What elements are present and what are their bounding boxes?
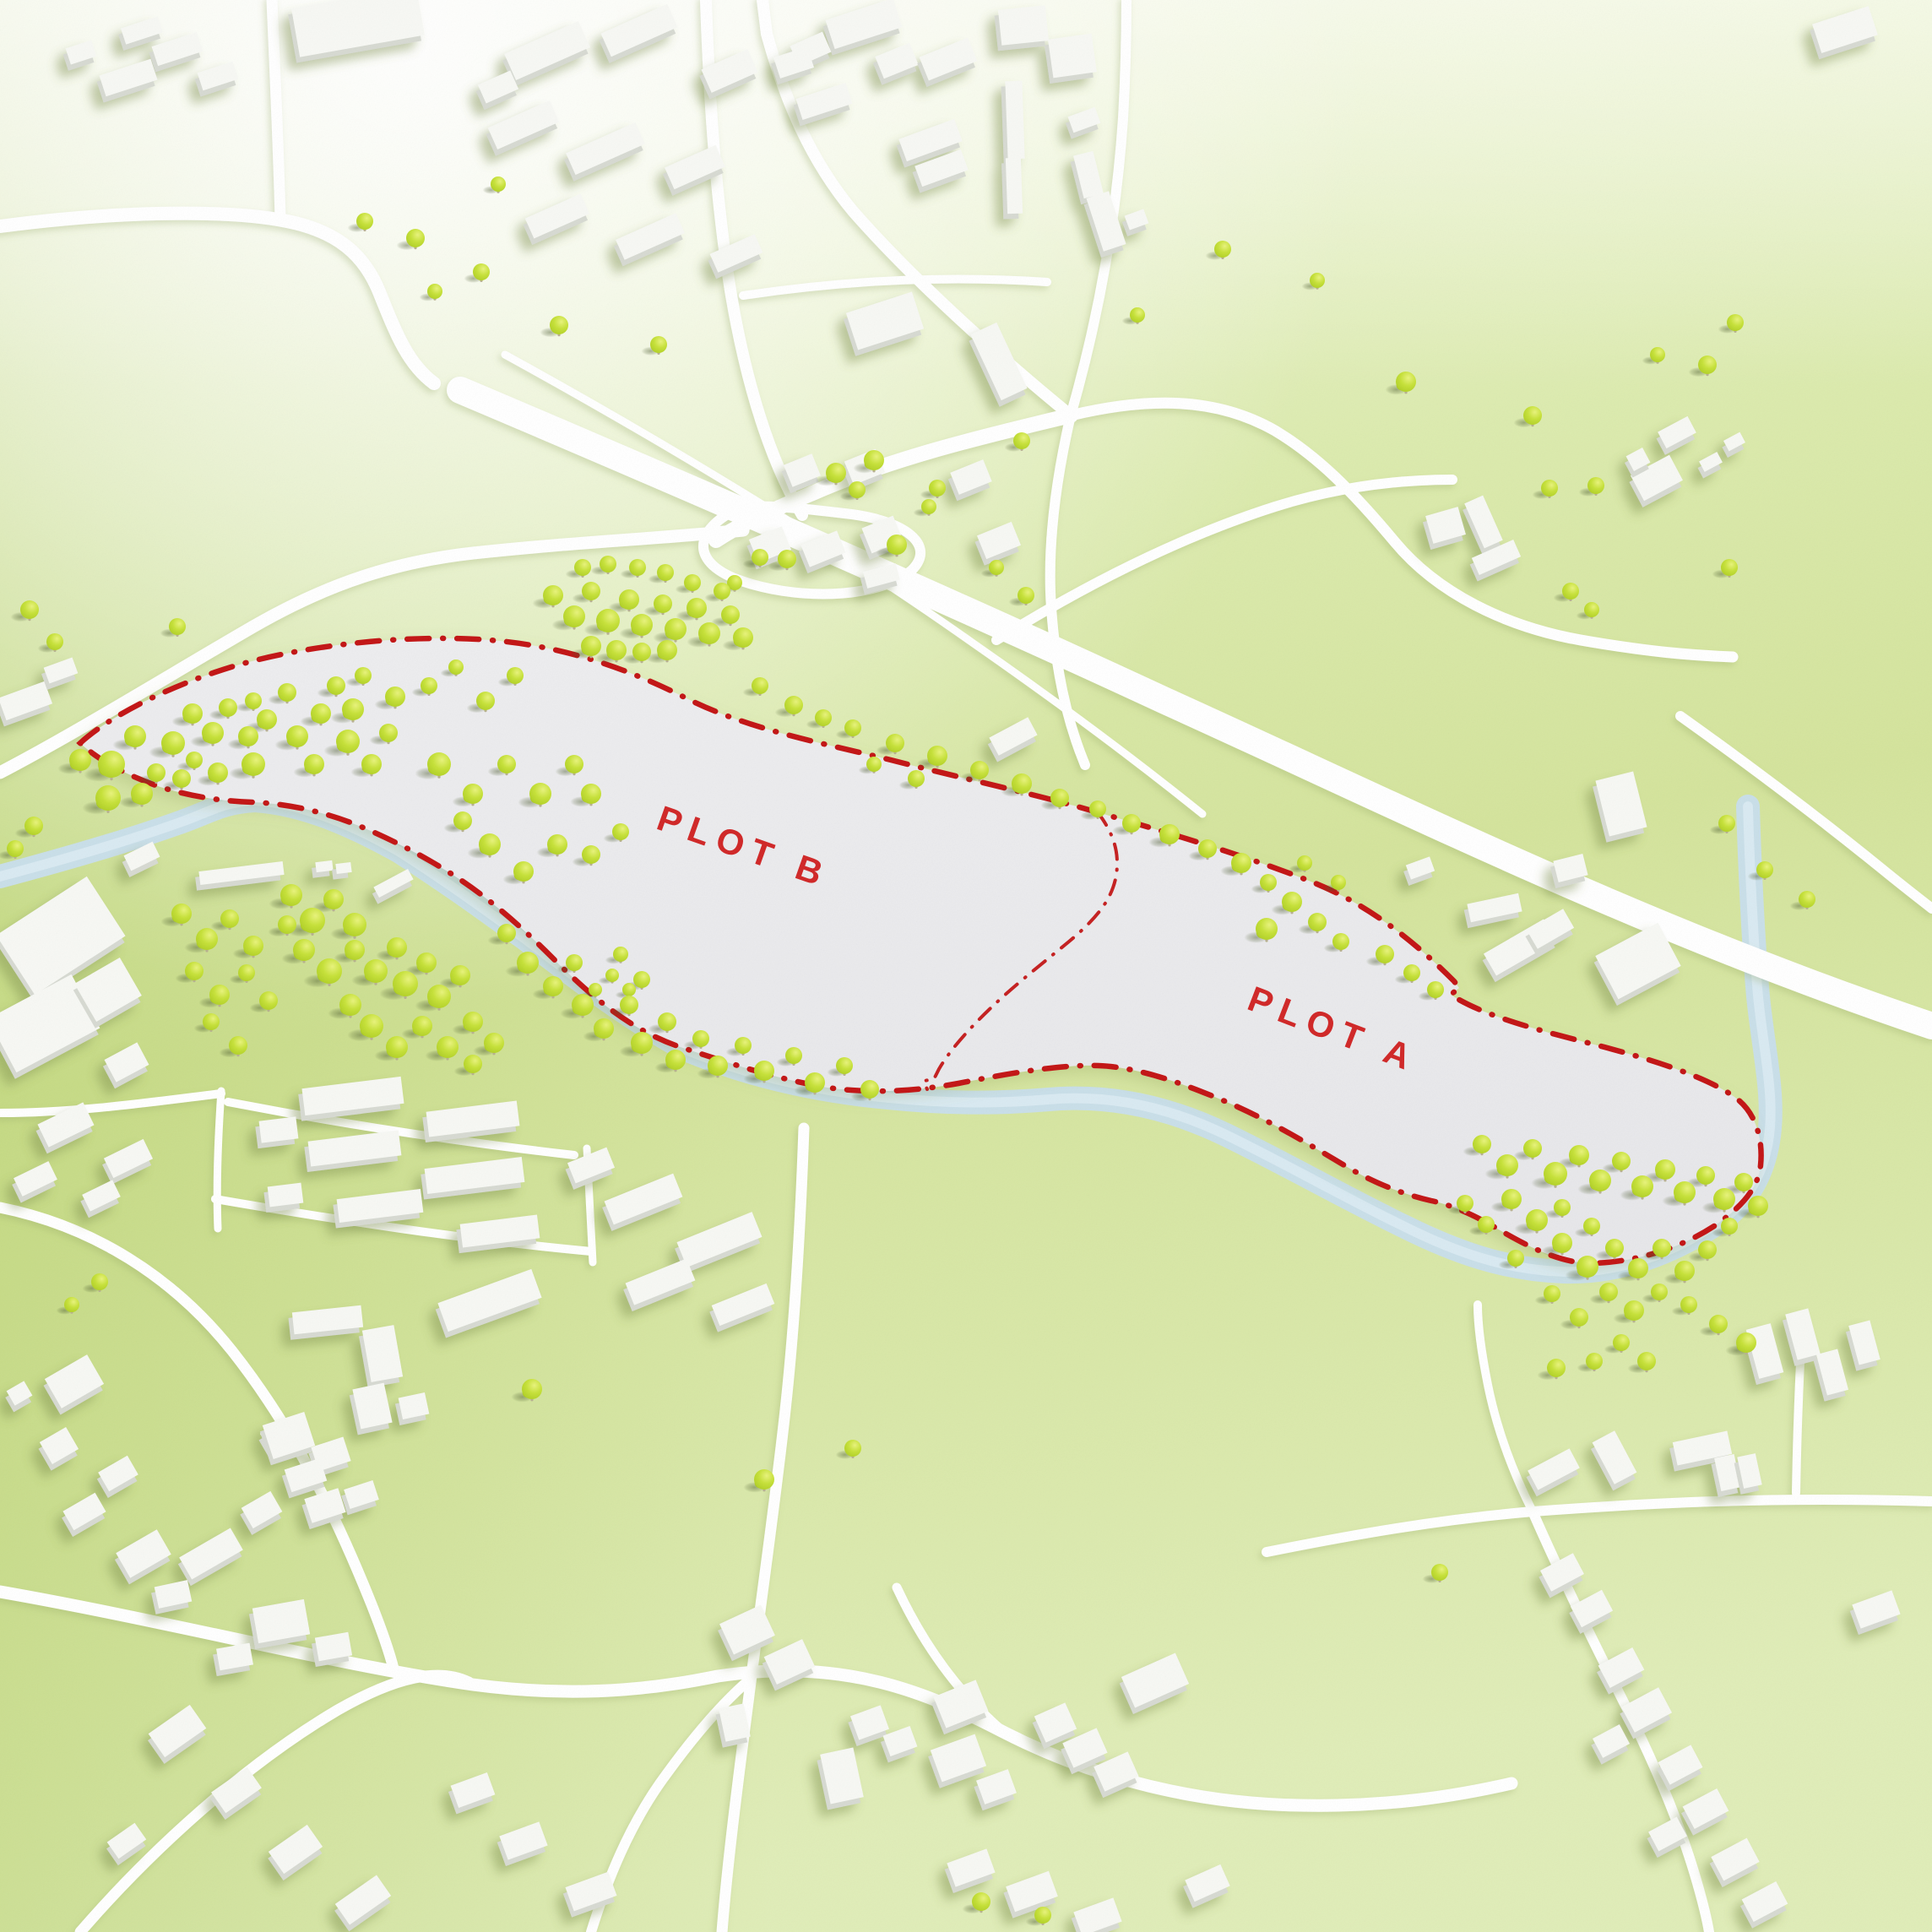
map-canvas: PLOT B PLOT A <box>0 0 1932 1932</box>
site-plan-map: PLOT B PLOT A <box>0 0 1932 1932</box>
film-grain-overlay <box>0 0 1932 1932</box>
